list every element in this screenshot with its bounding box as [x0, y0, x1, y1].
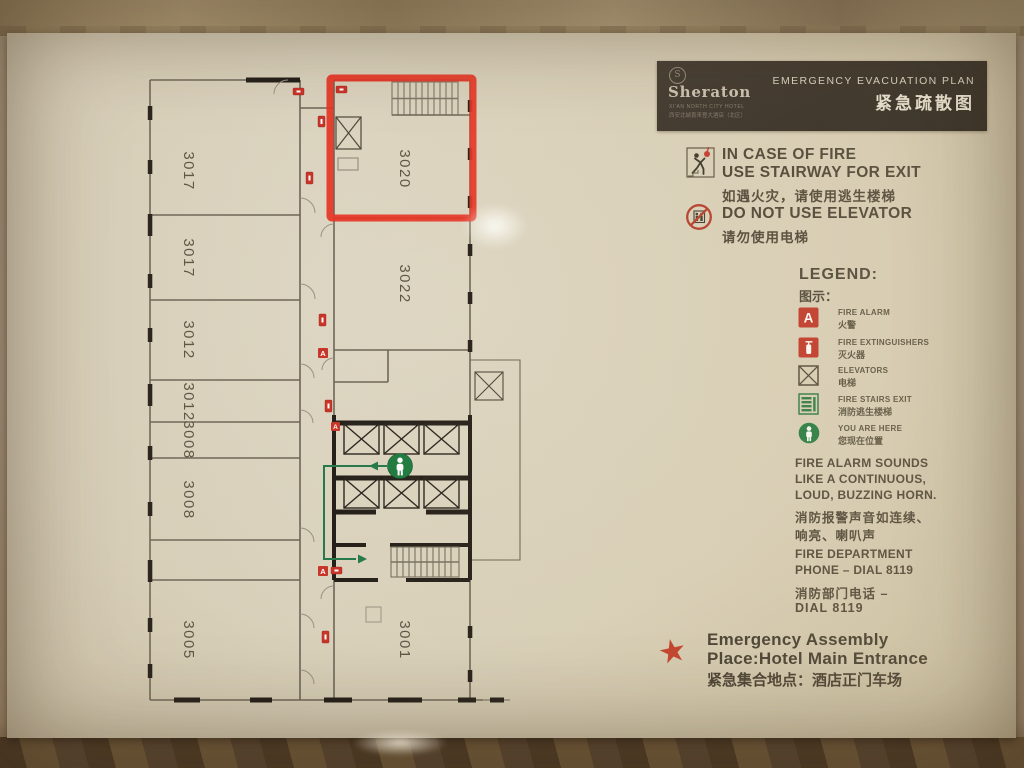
- legend-item-fire-alarm: A FIRE ALARM 火警: [798, 307, 998, 333]
- legend-item-fire-extinguishers: FIRE EXTINGUISHERS 灭火器: [798, 337, 998, 363]
- room-label: 3005: [180, 620, 197, 659]
- door-arcs: [274, 80, 334, 684]
- legend-label-en: YOU ARE HERE: [838, 424, 902, 433]
- fire-instruction-zh: 如遇火灾，请使用逃生楼梯: [722, 185, 896, 205]
- legend-label-zh: 消防逃生楼梯: [838, 405, 892, 418]
- alarm-note-zh-line2: 响亮、喇叭声: [795, 525, 876, 544]
- legend-label-en: FIRE STAIRS EXIT: [838, 395, 912, 404]
- fire-stairs-icon: [798, 393, 819, 415]
- brand-name: Sheraton: [668, 83, 751, 101]
- legend-label-en: ELEVATORS: [838, 366, 888, 375]
- legend-title-zh: 图示：: [799, 286, 838, 305]
- elevator-3020: [336, 117, 361, 170]
- room-label: 3012: [180, 320, 197, 359]
- fire-instruction-line2: USE STAIRWAY FOR EXIT: [722, 164, 921, 182]
- svg-text:A: A: [804, 311, 814, 326]
- room-label: 3017: [180, 151, 197, 190]
- legend-item-fire-stairs: FIRE STAIRS EXIT 消防逃生楼梯: [798, 393, 998, 419]
- service-elevator: [475, 372, 503, 400]
- legend-label-zh: 您现在位置: [838, 434, 883, 447]
- fire-instruction-line1: IN CASE OF FIRE: [722, 146, 856, 164]
- hotel-subtitle-zh: 西安北城喜来登大酒店（北区）: [669, 111, 746, 119]
- room-label: 3008: [180, 480, 197, 519]
- window-marks: [148, 78, 504, 703]
- elevator-icon: [798, 365, 819, 386]
- legend-item-you-are-here: YOU ARE HERE 您现在位置: [798, 422, 998, 448]
- route-arrow-left: [369, 462, 378, 471]
- elevator-instruction-en: DO NOT USE ELEVATOR: [722, 205, 912, 223]
- you-are-here-marker: [388, 454, 413, 479]
- assembly-line-zh: 紧急集合地点：酒店正门车场: [707, 669, 902, 690]
- plan-title-en: EMERGENCY EVACUATION PLAN: [773, 75, 975, 87]
- svg-text:A: A: [320, 567, 326, 576]
- phone-note-zh-line2: DIAL 8119: [795, 601, 864, 615]
- room-label-highlighted: 3020: [396, 149, 413, 188]
- alarm-note-line3: LOUD, BUZZING HORN.: [795, 488, 937, 502]
- alarm-note-line1: FIRE ALARM SOUNDS: [795, 456, 928, 470]
- room-label: 3008: [180, 420, 197, 459]
- marble-wall-bottom: [0, 737, 1024, 768]
- phone-note-line1: FIRE DEPARTMENT: [795, 547, 913, 561]
- room-labels: 3017 3017 3012 3012 3008 3008 3005 3020 …: [180, 149, 413, 659]
- legend-label-zh: 灭火器: [838, 348, 865, 361]
- legend-label-zh: 火警: [838, 318, 856, 331]
- header-panel: S Sheraton XI'AN NORTH CITY HOTEL 西安北城喜来…: [657, 61, 987, 131]
- plan-detail-square: [366, 607, 381, 622]
- route-arrow-right: [358, 555, 367, 564]
- fire-exit-icon: [686, 147, 715, 178]
- elevator-instruction-zh: 请勿使用电梯: [722, 226, 809, 246]
- plan-walls: [150, 80, 520, 700]
- room-label: 3017: [180, 238, 197, 277]
- fire-stair-top: [392, 82, 470, 115]
- assembly-line1: Emergency Assembly: [707, 630, 888, 650]
- fire-stair-bottom: [391, 547, 459, 577]
- legend-label-en: FIRE ALARM: [838, 308, 890, 317]
- phone-note-line2: PHONE – DIAL 8119: [795, 563, 913, 577]
- plan-title-zh: 紧急疏散图: [875, 89, 975, 114]
- legend-title-en: LEGEND:: [799, 266, 878, 284]
- marble-wall-top: [0, 0, 1024, 36]
- you-are-here-icon: [798, 422, 820, 444]
- alarm-note-line2: LIKE A CONTINUOUS,: [795, 472, 926, 486]
- svg-text:A: A: [333, 424, 338, 431]
- alarm-note-zh-line1: 消防报警声音如连续、: [795, 507, 930, 526]
- no-elevator-icon: [685, 203, 713, 231]
- assembly-line2: Place:Hotel Main Entrance: [707, 649, 928, 669]
- fire-alarm-icon: A: [798, 307, 819, 328]
- hotel-subtitle-en: XI'AN NORTH CITY HOTEL: [669, 104, 745, 110]
- sheraton-logo-icon: S: [669, 67, 686, 84]
- room-label: 3012: [180, 382, 197, 421]
- legend-item-elevators: ELEVATORS 电梯: [798, 365, 998, 391]
- phone-note-zh-line1: 消防部门电话 –: [795, 583, 888, 602]
- svg-text:A: A: [320, 349, 326, 358]
- legend-label-en: FIRE EXTINGUISHERS: [838, 338, 929, 347]
- legend-label-zh: 电梯: [838, 376, 856, 389]
- photo-of-evacuation-sign: A A A 3017 3017 3012 3012 3008 3008 3005…: [0, 0, 1024, 768]
- floor-plan: A A A 3017 3017 3012 3012 3008 3008 3005…: [138, 66, 548, 716]
- glare-spot-bottom: [352, 730, 448, 756]
- room-label: 3022: [396, 264, 413, 303]
- fire-extinguisher-icon: [798, 337, 819, 358]
- glare-spot: [462, 203, 528, 249]
- assembly-star-icon: ★: [655, 633, 689, 668]
- room-label: 3001: [396, 620, 413, 659]
